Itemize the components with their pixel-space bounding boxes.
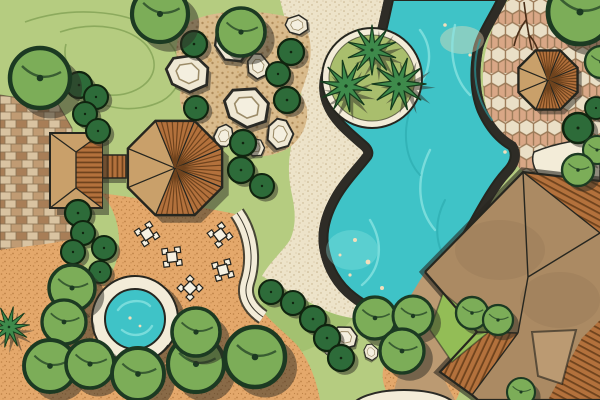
pebble: [208, 58, 212, 62]
spa-water: [105, 289, 165, 349]
pebble: [239, 74, 242, 77]
roof-mottle: [520, 272, 600, 328]
landscape-plan: [0, 0, 600, 400]
plan-drawing: [0, 0, 600, 400]
spa-speckle: [139, 325, 142, 328]
spa-speckle: [128, 316, 131, 319]
pebble: [219, 94, 222, 97]
water-highlight: [326, 230, 378, 270]
